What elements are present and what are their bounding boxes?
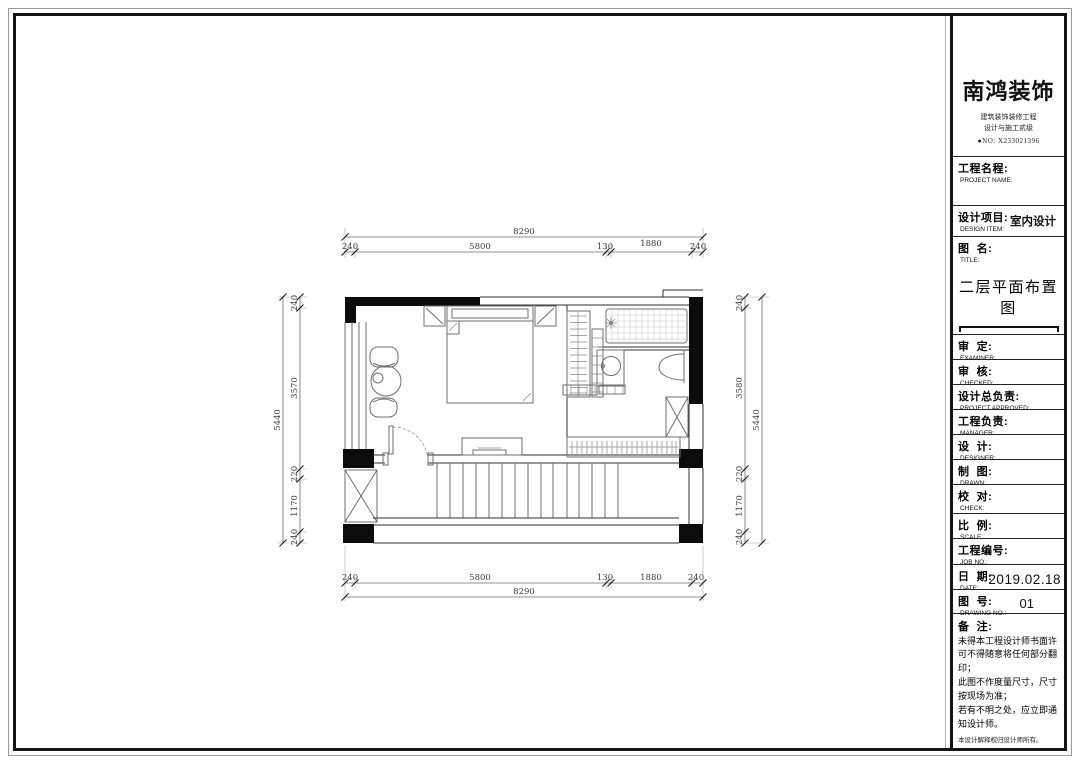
field-project-approved: 设计总负责: PROJECT APPROVED: [953, 384, 1064, 409]
title-block-separator-line [945, 16, 946, 748]
field-design-item: 设计项目: DESIGN ITEM: 室内设计 [953, 205, 1064, 236]
dim-label: 240 [735, 529, 745, 545]
clothes-rail [567, 437, 680, 457]
dim-label: 240 [342, 242, 358, 252]
sink-basin [602, 357, 621, 376]
nightstand-right [535, 306, 556, 326]
field-date: 日 期: DATE: 2019.02.18 [953, 564, 1064, 589]
tea-table [371, 366, 401, 396]
field-label: 图 号: [958, 593, 1059, 609]
field-project-name: 工程名程: PROJECT NAME: [953, 156, 1064, 205]
field-examiner: 审 定: EXAMINER: [953, 334, 1064, 359]
dim-label: 220 [290, 466, 300, 482]
dimensions-left: 5440 240 3570 220 1170 240 [273, 294, 307, 547]
dim-label: 240 [690, 242, 706, 252]
field-designer: 设 计: DESIGNER: [953, 434, 1064, 459]
field-label: 审 定: [958, 338, 1059, 354]
notes-label: 备 注: [958, 618, 1059, 634]
field-scale: 比 例: SCALE: [953, 513, 1064, 538]
drawing-sheet: 8290 240 5800 130 1880 240 240 5800 130 … [0, 0, 1080, 764]
company-subtitle-2: 设计与施工贰级 [953, 123, 1064, 134]
dim-label: 240 [688, 573, 704, 583]
dimensions-bottom: 240 5800 130 1880 240 8290 [342, 546, 707, 601]
column-box-left [345, 470, 377, 522]
dim-label: 5800 [469, 242, 491, 252]
wall-piers [343, 297, 703, 543]
field-value: 2019.02.18 [988, 572, 1061, 587]
dim-label: 5440 [273, 409, 283, 431]
dim-label: 1170 [290, 495, 300, 517]
field-label: 工程编号: [958, 542, 1059, 558]
tv-cabinet [462, 438, 522, 455]
dim-label: 8290 [513, 227, 535, 237]
field-label: 比 例: [958, 517, 1059, 533]
field-label: 设 计: [958, 438, 1059, 454]
dim-label: 240 [342, 573, 358, 583]
dim-label: 240 [290, 295, 300, 311]
company-logo: 南鸿装饰 建筑装饰装修工程 设计与施工贰级 ●NO: X233021396 [953, 16, 1064, 156]
field-label: 设计总负责: [958, 388, 1059, 404]
field-sublabel: TITLE: [958, 257, 1059, 264]
note-fine-print: 本设计解释权归设计师所有。 [958, 734, 1059, 744]
dim-label: 240 [290, 529, 300, 545]
drawing-title: 二层平面布置图 [958, 276, 1059, 318]
dim-label: 5440 [752, 409, 762, 431]
dim-label: 1170 [735, 495, 745, 517]
dim-label: 1880 [640, 239, 662, 249]
dim-label: 240 [735, 295, 745, 311]
armchair-top [370, 347, 398, 367]
toilet [659, 351, 684, 383]
note-line: 未得本工程设计师书面许可不得随意将任何部分翻印； [958, 635, 1059, 676]
field-label: 审 核: [958, 363, 1059, 379]
note-line: 若有不明之处，应立即通知设计师。 [958, 704, 1059, 731]
floor-plan: 8290 240 5800 130 1880 240 240 5800 130 … [265, 215, 785, 615]
dim-label: 5800 [469, 573, 491, 583]
wall-lines [373, 290, 703, 543]
dim-label: 3570 [290, 377, 300, 399]
title-block: 南鸿装饰 建筑装饰装修工程 设计与施工贰级 ●NO: X233021396 工程… [950, 13, 1067, 751]
window-left [345, 322, 366, 449]
column-box-right [666, 397, 688, 437]
field-value: 室内设计 [1010, 213, 1056, 229]
field-sublabel: PROJECT NAME: [958, 177, 1059, 184]
field-label: 工程负责: [958, 413, 1059, 429]
note-line: 此图不作度量尺寸，尺寸按现场为准； [958, 676, 1059, 703]
bed [447, 306, 533, 403]
field-manager: 工程负责: MANAGER: [953, 409, 1064, 434]
company-name: 南鸿装饰 [953, 74, 1064, 106]
dim-label: 8290 [513, 587, 535, 597]
door [383, 426, 433, 465]
staircase [373, 463, 679, 518]
dimensions-top: 8290 240 5800 130 1880 240 [342, 227, 707, 258]
title-underline-bracket [959, 326, 1059, 332]
notes-section: 备 注: 未得本工程设计师书面许可不得随意将任何部分翻印； 此图不作度量尺寸，尺… [953, 613, 1064, 749]
field-drawing-no: 图 号: DRAWING NO.: 01 [953, 589, 1064, 613]
field-sublabel: DRAWING NO.: [958, 610, 1059, 617]
field-check: 校 对: CHECK: [953, 484, 1064, 512]
dim-label: 1880 [640, 573, 662, 583]
field-checked: 审 核: CHECKED: [953, 359, 1064, 384]
armchair-bottom [370, 398, 397, 417]
wardrobe [567, 311, 590, 397]
field-drawn: 制 图: DRAWN: [953, 459, 1064, 484]
nightstand-left [424, 306, 445, 326]
dim-label: 3580 [735, 377, 745, 399]
shower-area [605, 309, 687, 343]
dimensions-right: 240 3580 220 1170 240 5440 [735, 294, 769, 547]
field-label: 制 图: [958, 463, 1059, 479]
field-job-no: 工程编号: JOB NO.: [953, 538, 1064, 564]
field-value: 01 [1020, 596, 1034, 611]
field-label: 校 对: [958, 488, 1059, 504]
company-subtitle-1: 建筑装饰装修工程 [953, 112, 1064, 123]
dim-label: 130 [597, 573, 613, 583]
field-label: 工程名程: [958, 160, 1059, 176]
field-label: 图 名: [958, 240, 1059, 256]
field-drawing-title: 图 名: TITLE: 二层平面布置图 [953, 236, 1064, 335]
dim-label: 220 [735, 466, 745, 482]
field-sublabel: CHECK: [958, 505, 1059, 512]
company-license-no: ●NO: X233021396 [953, 137, 1064, 145]
dim-label: 130 [597, 242, 613, 252]
